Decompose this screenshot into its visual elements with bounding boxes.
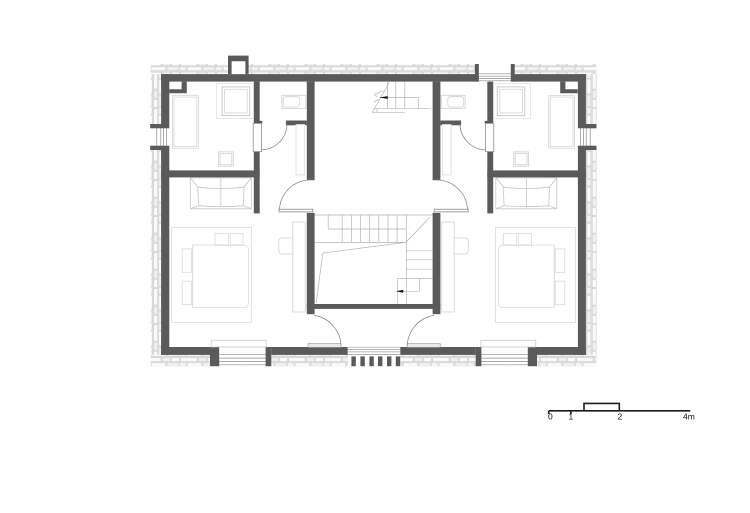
svg-text:1: 1 [569, 412, 574, 422]
svg-text:0: 0 [548, 412, 553, 422]
svg-text:2: 2 [618, 412, 623, 422]
svg-text:4m: 4m [683, 412, 695, 422]
